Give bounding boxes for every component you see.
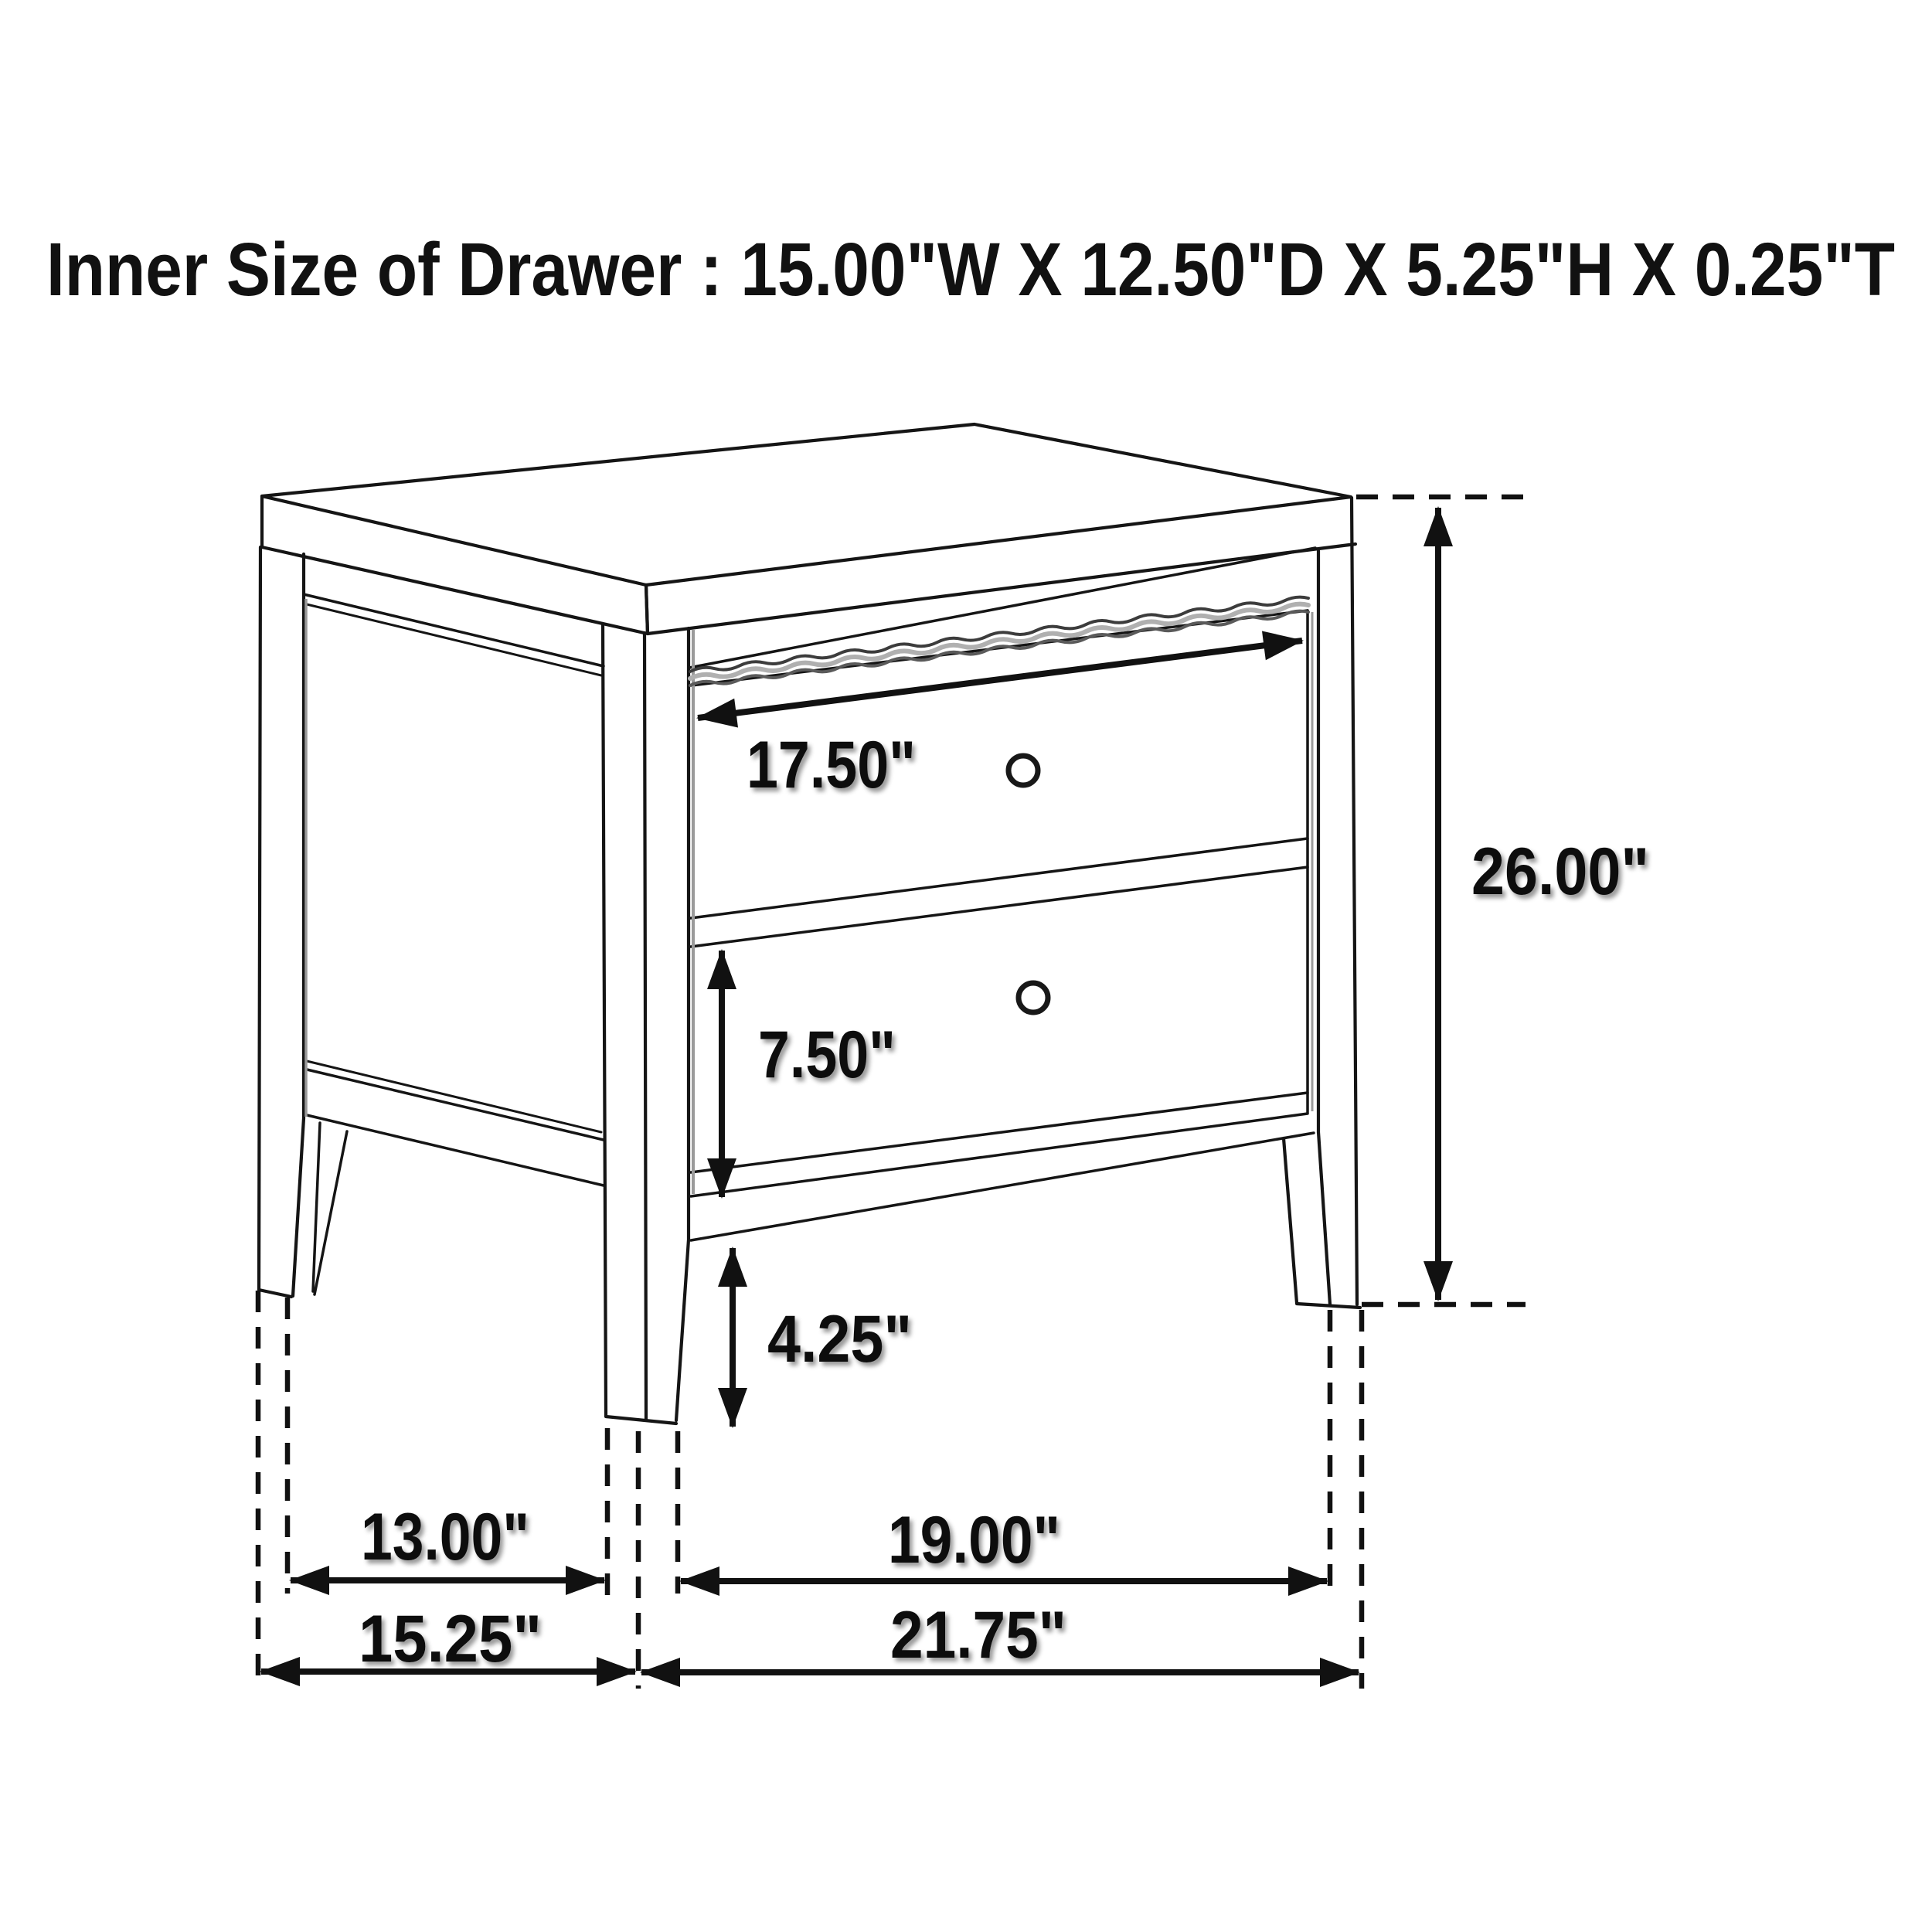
svg-text:13.00": 13.00" bbox=[361, 1500, 529, 1574]
svg-text:19.00": 19.00" bbox=[888, 1503, 1060, 1577]
svg-text:26.00": 26.00" bbox=[1471, 835, 1649, 909]
svg-text:4.25": 4.25" bbox=[767, 1302, 912, 1376]
svg-text:17.50": 17.50" bbox=[747, 728, 916, 802]
svg-text:21.75": 21.75" bbox=[890, 1598, 1066, 1672]
svg-text:15.25": 15.25" bbox=[359, 1602, 542, 1676]
svg-text:7.50": 7.50" bbox=[758, 1018, 896, 1092]
svg-text:Inner Size of Drawer : 15.00"W: Inner Size of Drawer : 15.00"W X 12.50"D… bbox=[46, 227, 1895, 311]
